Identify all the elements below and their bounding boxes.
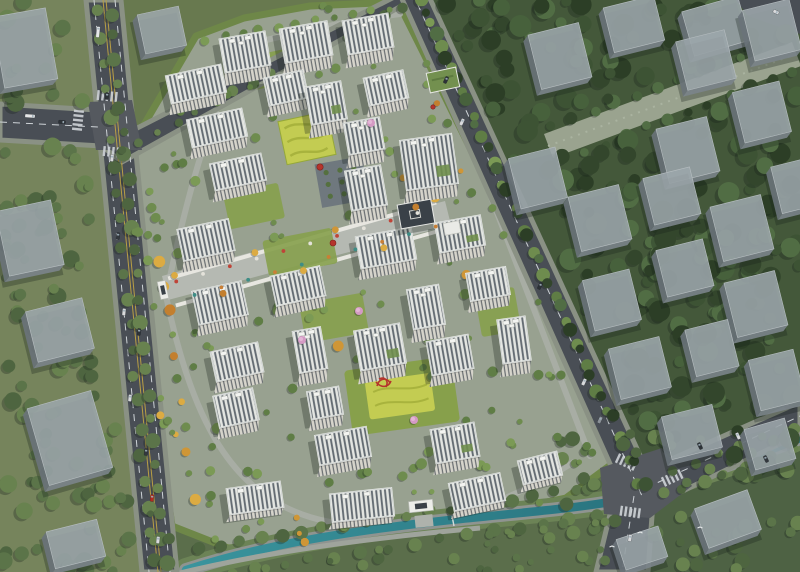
car bbox=[116, 232, 120, 239]
street-umbrella bbox=[308, 242, 312, 246]
residential-tower bbox=[346, 323, 408, 385]
street-umbrella bbox=[228, 264, 232, 268]
street-umbrella bbox=[335, 234, 339, 238]
red-sphere-sculpture bbox=[431, 105, 435, 109]
street-umbrella bbox=[219, 285, 223, 289]
car bbox=[122, 308, 126, 315]
street-umbrella bbox=[201, 272, 205, 276]
context-massing-block bbox=[128, 6, 188, 66]
street-umbrella bbox=[246, 278, 250, 282]
residential-tower bbox=[423, 422, 482, 475]
red-sphere-sculpture bbox=[317, 164, 323, 170]
residential-tower bbox=[458, 267, 512, 314]
street-umbrella bbox=[327, 255, 331, 259]
car bbox=[25, 114, 35, 118]
street-umbrella bbox=[273, 270, 277, 274]
street-umbrella bbox=[282, 249, 286, 253]
street-umbrella bbox=[380, 240, 384, 244]
aerial-masterplan-render: Aerial architectural rendering of a resi… bbox=[0, 0, 800, 572]
car bbox=[128, 394, 132, 401]
street-umbrella bbox=[407, 232, 411, 236]
entrance-gate bbox=[408, 499, 433, 512]
street-umbrella bbox=[193, 293, 197, 297]
car bbox=[144, 448, 148, 455]
residential-tower bbox=[272, 21, 335, 77]
car bbox=[58, 120, 65, 124]
annex-pavilion bbox=[443, 221, 461, 236]
street-umbrella bbox=[255, 257, 259, 261]
street-umbrella bbox=[300, 263, 304, 267]
canal-bridge bbox=[414, 514, 433, 528]
car bbox=[105, 92, 109, 99]
street-umbrella bbox=[389, 219, 393, 223]
rendered-scene bbox=[0, 0, 800, 572]
residential-tower bbox=[336, 117, 387, 169]
car bbox=[150, 494, 154, 501]
residential-tower bbox=[322, 488, 395, 531]
street-umbrella bbox=[434, 225, 438, 229]
residential-tower bbox=[335, 13, 396, 69]
street-umbrella bbox=[416, 211, 420, 215]
residential-tower bbox=[418, 335, 475, 388]
car bbox=[110, 154, 114, 161]
street-umbrella bbox=[353, 247, 357, 251]
residential-tower bbox=[337, 165, 390, 225]
car bbox=[156, 536, 160, 543]
street-umbrella bbox=[362, 226, 366, 230]
street-umbrella bbox=[174, 280, 178, 284]
residential-tower bbox=[392, 134, 460, 205]
car bbox=[137, 328, 141, 335]
red-sphere-sculpture bbox=[330, 240, 336, 246]
